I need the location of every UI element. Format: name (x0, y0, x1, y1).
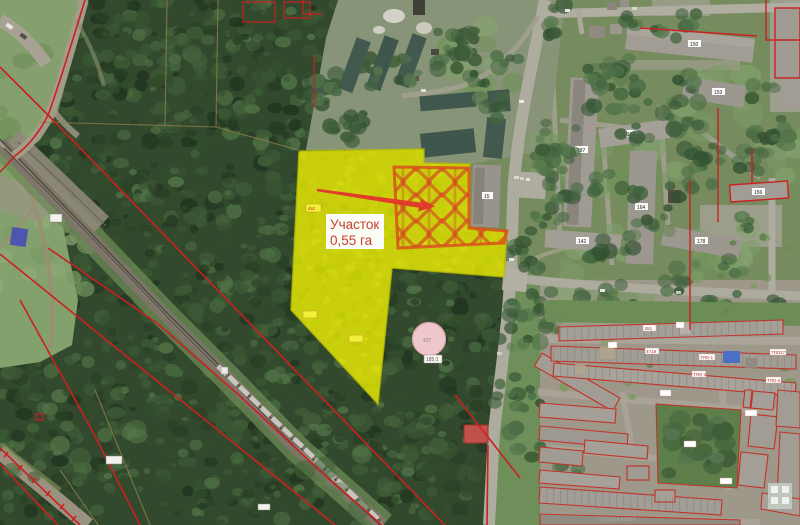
svg-text:178: 178 (697, 239, 706, 245)
svg-text:спутник карта: спутник карта (598, 517, 637, 523)
svg-text:ТЯО27: ТЯО27 (771, 350, 786, 355)
svg-text:156: 156 (754, 190, 763, 196)
svg-text:142: 142 (578, 239, 587, 245)
svg-text:ТЯО-3: ТЯО-3 (693, 372, 707, 377)
svg-text:164: 164 (637, 205, 646, 211)
svg-text:0,55 га: 0,55 га (330, 233, 373, 248)
svg-text:15: 15 (484, 194, 490, 200)
svg-text:ТЯО-2: ТЯО-2 (767, 378, 781, 383)
svg-text:Участок: Участок (330, 217, 379, 232)
svg-text:437: 437 (423, 338, 432, 344)
svg-text:452: 452 (308, 206, 316, 211)
svg-text:185:1: 185:1 (426, 357, 439, 363)
svg-text:281: 281 (645, 326, 653, 331)
svg-text:ТЯО-1: ТЯО-1 (700, 355, 714, 360)
svg-text:150: 150 (690, 42, 699, 48)
svg-text:4719: 4719 (646, 349, 657, 354)
svg-text:153: 153 (714, 90, 723, 96)
